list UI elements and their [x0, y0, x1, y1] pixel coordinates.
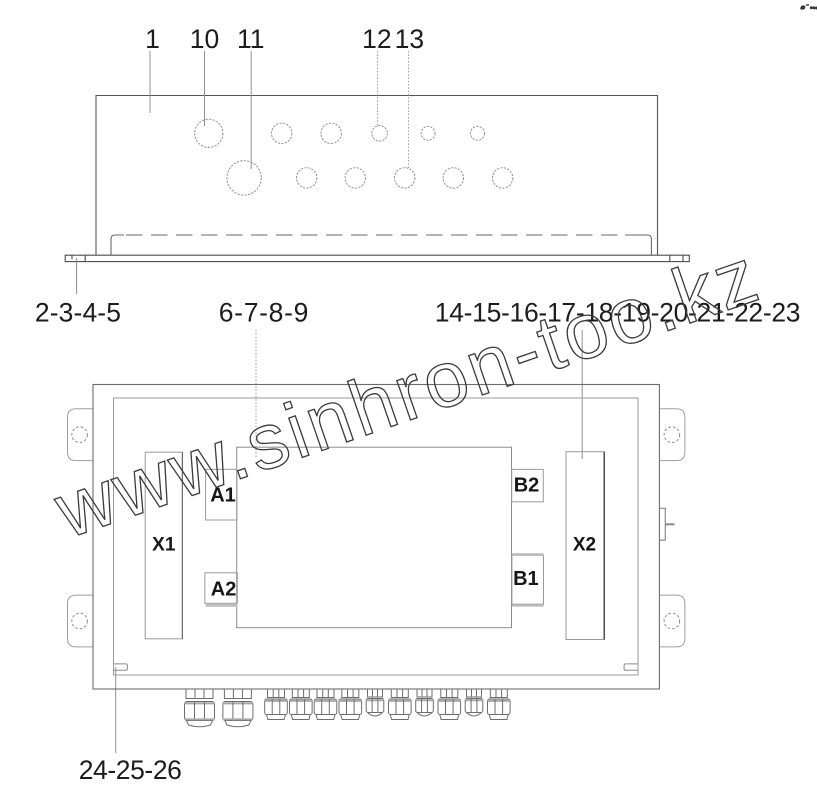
svg-text:X2: X2	[573, 534, 596, 555]
svg-text:A2: A2	[211, 578, 237, 600]
svg-text:B1: B1	[513, 568, 539, 590]
svg-text:10: 10	[190, 24, 219, 54]
svg-text:6-7-8-9: 6-7-8-9	[219, 298, 309, 328]
svg-text:12: 12	[362, 24, 391, 54]
svg-text:24-25-26: 24-25-26	[79, 755, 182, 785]
svg-text:X1: X1	[152, 534, 176, 555]
svg-text:2-3-4-5: 2-3-4-5	[35, 298, 121, 328]
svg-text:B2: B2	[514, 475, 540, 497]
svg-text:1: 1	[145, 24, 160, 54]
svg-text:13: 13	[395, 24, 424, 54]
svg-text:11: 11	[237, 24, 265, 54]
